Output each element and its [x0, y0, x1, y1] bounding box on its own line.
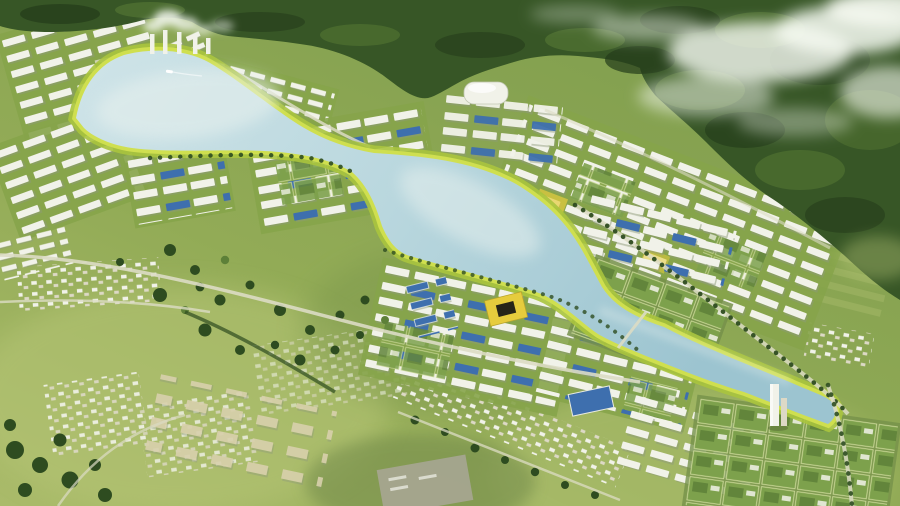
tree-dot [501, 456, 509, 464]
tree-dot [6, 441, 24, 459]
tree-dot [215, 295, 226, 306]
tower-block-2 [781, 398, 787, 426]
tree-dot [199, 324, 212, 337]
tree-dot [4, 419, 16, 431]
cloud [638, 76, 774, 116]
tree-dot [235, 345, 245, 355]
tree-dot [361, 296, 370, 305]
masterplan-scene [0, 0, 900, 506]
tree-dot [190, 265, 200, 275]
steam-puff [210, 20, 234, 32]
canopy-blob [605, 46, 675, 74]
tree-dot [18, 483, 32, 497]
tower-highlight [770, 384, 773, 426]
tree-dot [164, 244, 176, 256]
tree-dot [271, 341, 279, 349]
tree-dot [98, 488, 112, 502]
canopy-blob [320, 24, 400, 46]
smokestack [193, 36, 198, 54]
canopy-blob [20, 4, 100, 24]
tree-dot [54, 434, 67, 447]
canopy-blob [755, 150, 845, 190]
tree-dot [32, 457, 48, 473]
smokestack [206, 38, 211, 54]
smokestack [177, 32, 182, 54]
cloud [530, 5, 620, 23]
canopy-blob [805, 197, 885, 233]
tree-dot [561, 481, 569, 489]
tree-dot [153, 288, 167, 302]
smokestack [163, 30, 168, 54]
dome-highlight [468, 83, 496, 93]
tree-dot [356, 331, 364, 339]
tree-dot [221, 256, 229, 264]
aerial-rendering [0, 0, 900, 506]
tree-dot [531, 468, 539, 476]
tree-dot [331, 346, 340, 355]
tree-dot [295, 355, 306, 366]
canopy-blob [435, 32, 525, 58]
tree-dot [381, 316, 389, 324]
steam-puff [194, 25, 212, 35]
cloud [737, 108, 853, 136]
tree-dot [62, 472, 79, 489]
tree-dot [305, 325, 315, 335]
smokestack [150, 34, 155, 54]
dome-hall [464, 82, 508, 104]
tree-dot [116, 258, 124, 266]
tree-dot [246, 281, 255, 290]
